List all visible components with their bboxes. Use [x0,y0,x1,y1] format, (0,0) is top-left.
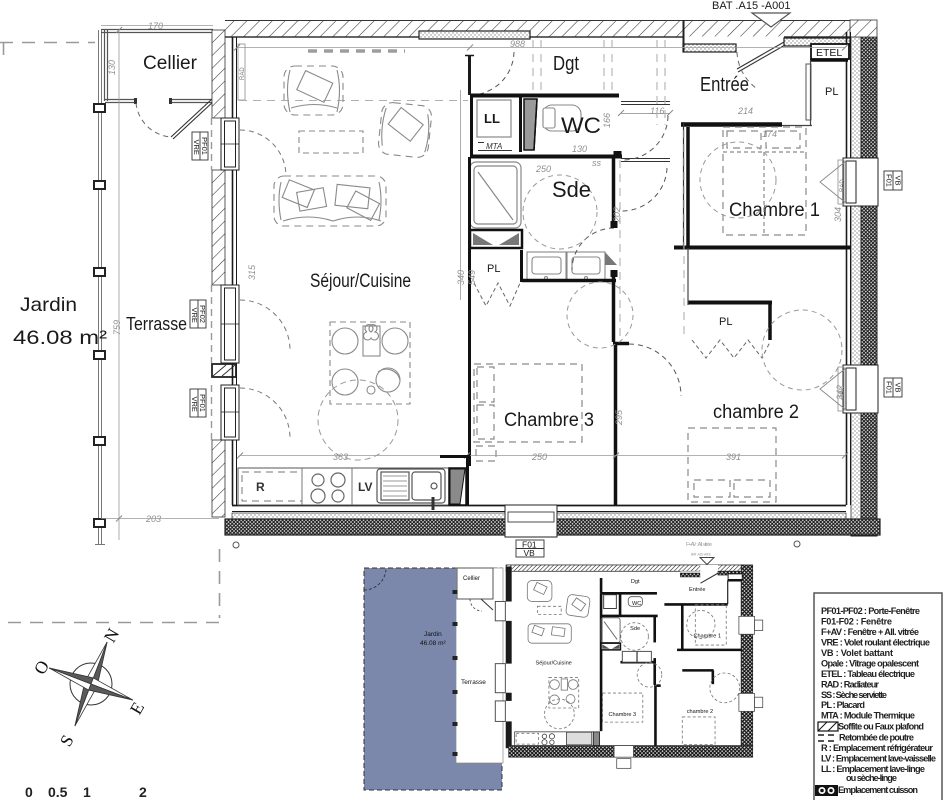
svg-text:46.08 m²: 46.08 m² [420,640,446,647]
svg-text:F01: F01 [885,174,894,187]
svg-text:MTA: MTA [486,142,502,151]
svg-text:ETEL : Tableau électrique: ETEL : Tableau électrique [821,669,915,679]
svg-text:VB : Volet battant: VB : Volet battant [821,648,893,658]
svg-text:E: E [125,698,148,717]
svg-text:F01: F01 [885,381,894,394]
svg-text:WC: WC [561,113,601,138]
svg-text:1: 1 [83,784,91,800]
svg-text:F+AV : All. vitrée: F+AV : All. vitrée [686,542,712,548]
svg-text:PL: PL [487,263,500,275]
svg-text:Chambre 3: Chambre 3 [504,410,594,431]
svg-text:Chambre 3: Chambre 3 [609,712,637,718]
svg-text:342: 342 [835,385,845,400]
svg-text:340: 340 [456,270,466,285]
svg-text:203: 203 [145,514,161,524]
svg-text:VRE: VRE [190,397,199,412]
svg-text:0.5: 0.5 [48,784,68,800]
svg-text:VB: VB [894,383,903,393]
svg-text:Soffite ou Faux plafond: Soffite ou Faux plafond [838,722,924,732]
svg-text:ou sèche-linge: ou sèche-linge [846,773,897,783]
svg-text:0: 0 [25,784,33,800]
svg-text:O: O [29,657,53,678]
svg-text:VB: VB [524,548,536,558]
svg-text:N: N [99,624,123,645]
svg-text:Terrasse: Terrasse [126,314,187,334]
svg-text:R: R [256,480,265,494]
svg-text:Chambre 1: Chambre 1 [693,634,721,640]
svg-text:Cellier: Cellier [463,576,480,582]
svg-text:VRE: VRE [192,140,201,155]
svg-text:Entrée: Entrée [689,587,705,593]
svg-text:549: 549 [467,270,477,285]
svg-text:BAT .A15 -A001: BAT .A15 -A001 [712,0,790,12]
svg-text:PL: PL [825,86,838,98]
svg-text:130: 130 [107,60,117,75]
svg-text:PL: PL [719,316,732,328]
svg-text:LV : Emplacement lave-vaissell: LV : Emplacement lave-vaisselle [821,754,936,764]
svg-text:304: 304 [833,207,843,222]
svg-text:PL : Placard: PL : Placard [821,700,865,710]
svg-text:Jardin: Jardin [424,631,442,638]
svg-text:Dgt: Dgt [553,53,579,75]
svg-text:46.08 m²: 46.08 m² [13,327,108,349]
svg-text:RAD: RAD [240,67,246,80]
svg-text:Sde: Sde [552,177,591,202]
svg-text:250: 250 [531,452,547,462]
svg-text:759: 759 [112,320,122,335]
svg-text:VB: VB [894,176,903,186]
svg-text:130: 130 [572,144,587,154]
svg-text:BAT .A15 -A001: BAT .A15 -A001 [691,553,711,557]
svg-text:315: 315 [247,264,257,280]
svg-text:391: 391 [726,452,741,462]
svg-text:Sde: Sde [630,626,640,632]
svg-text:SS : Sèche serviette: SS : Sèche serviette [821,690,887,700]
svg-text:Emplacement cuisson: Emplacement cuisson [838,785,918,795]
svg-text:Terrasse: Terrasse [461,679,486,686]
svg-text:295: 295 [614,409,624,426]
svg-text:LL: LL [484,111,500,126]
svg-text:R : Emplacement réfrigérateur: R : Emplacement réfrigérateur [821,743,933,753]
svg-text:S: S [55,731,77,749]
svg-text:F01-F02 : Fenêtre: F01-F02 : Fenêtre [821,617,892,627]
svg-text:Jardin: Jardin [20,294,77,316]
svg-text:Opale : Vitrage opalescent: Opale : Vitrage opalescent [821,659,919,669]
svg-text:chambre 2: chambre 2 [687,709,713,715]
svg-text:VRE: VRE [190,308,199,323]
svg-text:ss: ss [592,158,602,168]
svg-text:Cellier: Cellier [143,53,198,74]
svg-text:250: 250 [535,164,551,174]
svg-text:166: 166 [602,113,612,128]
svg-text:PF01-PF02 : Porte-Fenêtre: PF01-PF02 : Porte-Fenêtre [821,606,920,616]
svg-text:Dgt: Dgt [631,579,640,585]
svg-text:chambre 2: chambre 2 [713,402,799,423]
svg-text:RAD : Radiateur: RAD : Radiateur [821,680,879,690]
svg-text:363: 363 [333,452,348,462]
svg-text:WC: WC [632,601,641,607]
svg-text:VRE : Volet roulant électrique: VRE : Volet roulant électrique [821,638,930,648]
svg-text:Séjour/Cuisine: Séjour/Cuisine [536,660,572,666]
svg-text:170: 170 [148,21,163,31]
svg-text:ETEL: ETEL [816,47,842,59]
svg-text:Retombée de poutre: Retombée de poutre [839,733,914,743]
svg-text:MTA : Module Thermique: MTA : Module Thermique [821,711,915,721]
svg-text:Entrée: Entrée [700,74,749,96]
svg-text:Séjour/Cuisine: Séjour/Cuisine [310,271,411,292]
svg-text:F+AV : Fenêtre + All. vitrée: F+AV : Fenêtre + All. vitrée [821,627,919,637]
svg-text:2: 2 [139,784,147,800]
svg-text:RAD: RAD [840,179,846,192]
svg-text:LV: LV [358,480,372,494]
svg-text:214: 214 [737,106,753,116]
